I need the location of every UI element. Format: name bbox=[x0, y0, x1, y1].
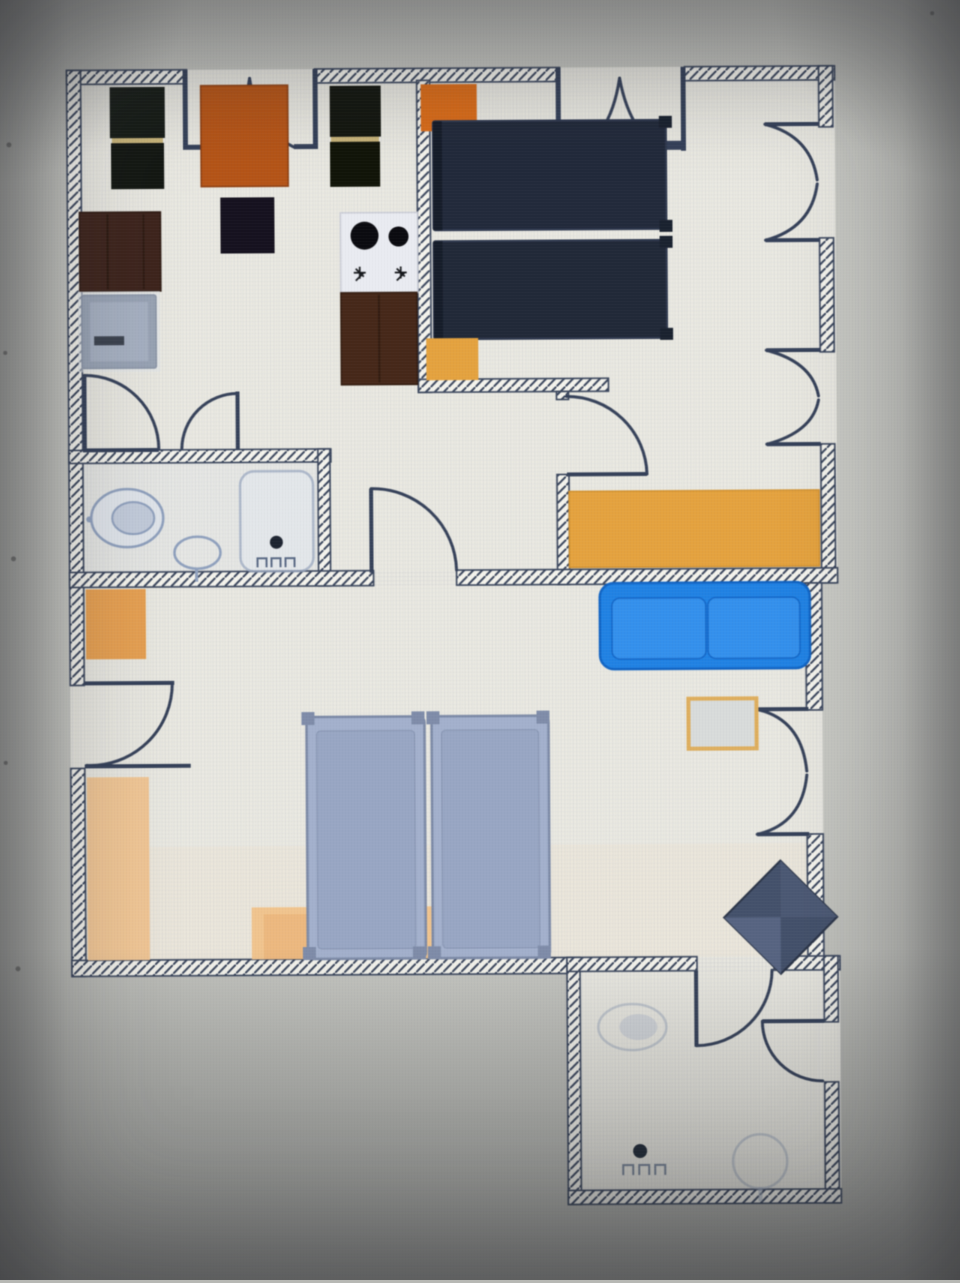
couch-cushion-left bbox=[612, 598, 706, 660]
shower-drain-dot bbox=[270, 536, 283, 549]
stove-burner-small bbox=[388, 226, 408, 246]
toilet-1-seat bbox=[112, 502, 154, 534]
jamb-kitchen-balcony-left bbox=[183, 70, 188, 150]
bed-gray-2-post-b bbox=[536, 711, 549, 724]
rug-lower-top-left[interactable] bbox=[86, 589, 146, 659]
kitchen-chair-1[interactable] bbox=[110, 87, 165, 138]
floor-plan bbox=[0, 0, 960, 1283]
wall-top-right bbox=[685, 66, 835, 81]
leaf-bath1-door-b bbox=[235, 391, 239, 449]
leaf-bath2-door2 bbox=[762, 1019, 824, 1023]
kitchen-bench-strip-2 bbox=[331, 137, 379, 142]
bed-gray-2-post-a bbox=[426, 711, 439, 724]
leaf-hall-lower-door bbox=[369, 489, 374, 573]
stove[interactable] bbox=[340, 212, 417, 292]
dust-speck bbox=[11, 556, 16, 561]
bed-navy-1-post-b bbox=[659, 220, 672, 232]
bed-gray-2-post-c bbox=[428, 946, 441, 959]
stove-burner-large bbox=[350, 222, 378, 250]
dining-table[interactable] bbox=[201, 85, 289, 187]
dust-speck bbox=[6, 142, 11, 147]
kitchen-chair-3[interactable] bbox=[330, 86, 381, 137]
coffee-table[interactable] bbox=[688, 698, 756, 748]
kitchen-chair-5[interactable] bbox=[220, 197, 274, 253]
washing-machine-inner bbox=[90, 302, 148, 361]
washing-machine-label bbox=[94, 336, 124, 345]
bed-navy-2-headboard bbox=[434, 241, 444, 339]
wall-right-1 bbox=[818, 66, 832, 127]
kitchen-counter-seam bbox=[379, 295, 380, 383]
wall-middle-left bbox=[70, 571, 374, 588]
kitchen-chair-4[interactable] bbox=[330, 142, 380, 187]
kitchen-cabinet[interactable] bbox=[79, 212, 160, 291]
bed-gray-1-post-c bbox=[303, 947, 316, 960]
bed-navy-1-headboard bbox=[433, 121, 443, 230]
couch-cushion-right bbox=[708, 597, 800, 659]
leaf-kitchen-balcony-right bbox=[294, 144, 318, 149]
wall-top-left bbox=[67, 70, 187, 85]
leaf-bath2-door1 bbox=[694, 971, 698, 1047]
wall-bath2-east-1 bbox=[824, 956, 838, 1022]
kitchen-chair-2[interactable] bbox=[111, 143, 164, 189]
wall-bath2-east-2 bbox=[825, 1082, 840, 1203]
wall-bedroom-south bbox=[418, 378, 608, 392]
wall-bath1-east bbox=[318, 449, 331, 586]
leaf-strip-door bbox=[567, 472, 647, 476]
rug-lower-left[interactable] bbox=[87, 777, 150, 960]
bed-navy-1[interactable] bbox=[433, 120, 667, 230]
dust-speck bbox=[3, 351, 7, 355]
screen-photo bbox=[0, 0, 960, 1280]
bed-navy-1-post-a bbox=[659, 116, 672, 128]
wall-right-2 bbox=[820, 238, 835, 352]
bed-gray-1-post-b bbox=[411, 711, 424, 724]
wall-bath2-west bbox=[567, 957, 582, 1204]
wall-left-lower bbox=[71, 768, 86, 976]
dust-speck bbox=[930, 11, 934, 15]
threshold-bath1-door-a bbox=[83, 448, 159, 452]
wardrobe-strip-room[interactable] bbox=[569, 490, 819, 568]
wall-strip-divider bbox=[557, 474, 570, 584]
bed-gray-1-post-a bbox=[301, 712, 314, 725]
wall-bath2-south bbox=[568, 1189, 841, 1205]
wall-top-mid bbox=[315, 68, 560, 83]
bed-navy-2-post-a bbox=[660, 236, 673, 248]
bathroom2-floor-grid bbox=[567, 956, 842, 1205]
jamb-entrance-right bbox=[681, 67, 687, 151]
floor-plan-svg bbox=[0, 0, 960, 1283]
shower-tray[interactable] bbox=[240, 471, 314, 571]
bed-gray-1-inner bbox=[317, 730, 416, 949]
wall-left-upper bbox=[67, 70, 85, 685]
bath2-drain-dot bbox=[633, 1144, 647, 1158]
kitchen-bench-strip-1 bbox=[112, 138, 163, 143]
bed-navy-2[interactable] bbox=[434, 240, 668, 339]
bed-gray-2-post-d bbox=[538, 946, 551, 959]
bed-gray-1-post-d bbox=[413, 946, 426, 959]
bed-navy-2-post-b bbox=[660, 328, 673, 340]
toilet-1-button bbox=[86, 516, 92, 522]
toilet-2-seat bbox=[619, 1014, 657, 1040]
dust-speck bbox=[4, 761, 8, 765]
wall-bath2-north-1 bbox=[567, 957, 697, 972]
wall-lower-bottom bbox=[72, 957, 572, 976]
jamb-kitchen-balcony-right bbox=[313, 69, 318, 149]
leaf-lower-left-door-top bbox=[84, 681, 174, 686]
dust-speck bbox=[15, 966, 20, 971]
nightstand-bedroom-bottom[interactable] bbox=[426, 338, 478, 380]
leaf-bath1-door-a bbox=[82, 374, 86, 450]
bed-gray-2-inner bbox=[442, 730, 540, 949]
wall-right-3 bbox=[821, 444, 836, 583]
